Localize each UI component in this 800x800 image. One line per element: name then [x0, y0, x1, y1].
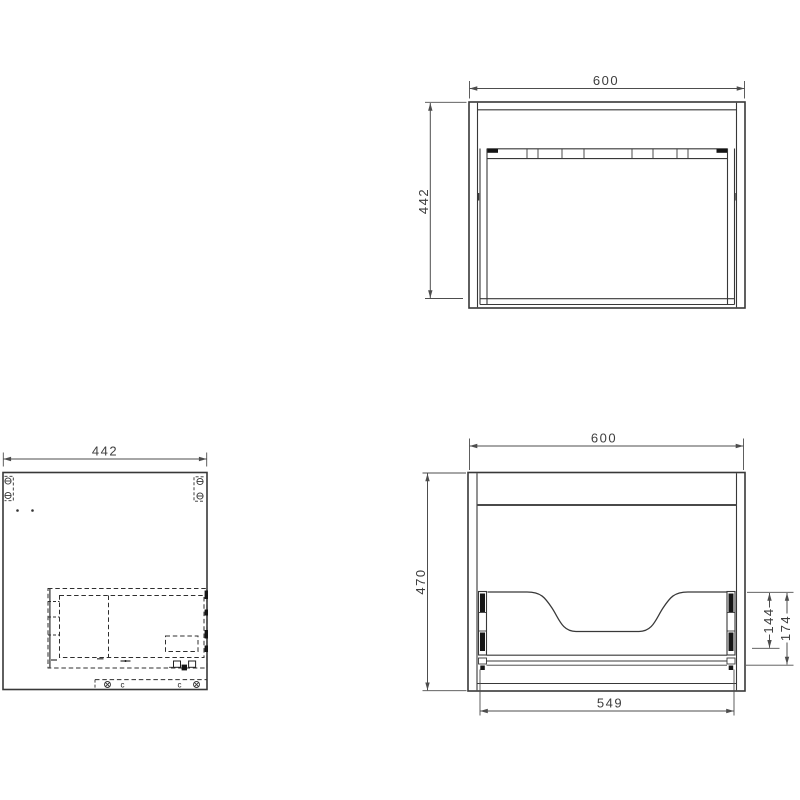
back-width-dim-label: 600 — [591, 431, 617, 446]
cad-drawing-sheet: 600 442 442 — [0, 0, 800, 800]
drawer-slide-rail-left — [479, 592, 487, 671]
dimension-back-width: 600 — [470, 431, 744, 471]
dowel-marks — [16, 509, 34, 512]
drawer-runner-hidden-outline — [48, 589, 208, 671]
cam-lock-icon — [105, 682, 111, 688]
slide-inner-height-dim-label: 144 — [761, 607, 776, 633]
bottom-rail — [487, 655, 728, 665]
hinge-screw-holes-left — [5, 476, 14, 500]
front-height-dim-label: 442 — [416, 188, 431, 214]
drawer-box-front — [479, 149, 736, 305]
dimension-bottom-width: 549 — [480, 670, 734, 716]
side-view-drawing: 442 — [3, 444, 208, 690]
cam-label-1: c — [121, 680, 125, 689]
hinge-screw-holes-right — [194, 477, 204, 501]
dimension-back-height: 470 — [413, 473, 467, 691]
cabinet-front-outline — [469, 102, 745, 308]
dimension-front-width: 600 — [470, 73, 745, 99]
drawer-back-scallop-edge — [488, 592, 728, 632]
cam-label-2: c — [178, 680, 182, 689]
front-view-drawing: 600 442 — [416, 73, 745, 308]
side-panel-outline — [3, 473, 207, 690]
dimension-front-height: 442 — [416, 102, 467, 298]
bottom-width-dim-label: 549 — [597, 696, 623, 711]
drawer-slide-rail-right — [727, 592, 735, 671]
front-width-dim-label: 600 — [593, 73, 619, 88]
back-height-dim-label: 470 — [413, 568, 428, 594]
dimension-side-width: 442 — [3, 444, 206, 467]
bottom-fitting-strip: c c — [95, 680, 207, 690]
technical-drawing-canvas: 600 442 442 — [0, 0, 800, 800]
dimension-slide-heights: 144 174 — [746, 592, 794, 665]
cabinet-back-outline — [468, 473, 745, 692]
slide-outer-height-dim-label: 174 — [778, 615, 793, 641]
cam-lock-icon — [194, 682, 200, 688]
back-view-drawing: 600 470 549 144 174 — [413, 431, 794, 716]
side-width-dim-label: 442 — [92, 444, 118, 459]
